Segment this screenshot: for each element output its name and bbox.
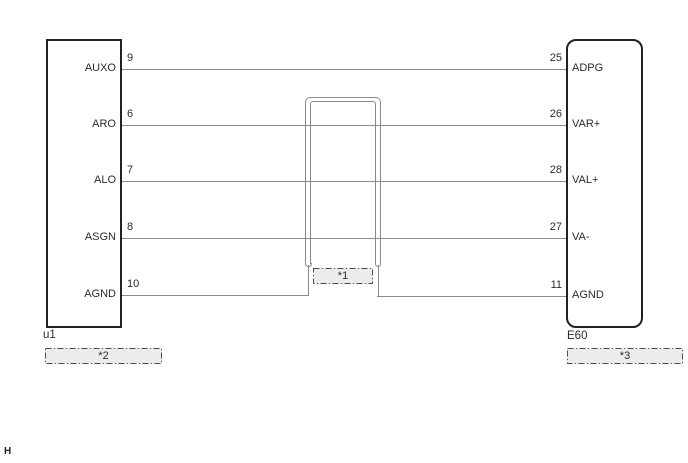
pin-number-11: 11 (500, 279, 562, 291)
pin-number-26: 26 (500, 108, 562, 120)
callout-u1-label: *2 (98, 350, 108, 362)
page-marker: H (4, 446, 11, 457)
pin-label-asgn: ASGN (46, 229, 116, 245)
callout-shield: *1 (313, 268, 373, 284)
pin-label-vaminus: VA- (572, 229, 642, 245)
pin-label-valplus: VAL+ (572, 172, 642, 188)
wire-agnd-left (122, 295, 309, 296)
pin-label-alo: ALO (46, 172, 116, 188)
connector-id-e60: E60 (567, 330, 587, 343)
shield-cap-left (305, 263, 312, 268)
pin-number-10: 10 (127, 278, 157, 290)
callout-e60: *3 (567, 348, 683, 364)
pin-label-agnd-right: AGND (572, 287, 642, 303)
wire-auxo-adpg (122, 69, 566, 70)
pin-label-adpg: ADPG (572, 60, 642, 76)
pin-label-aro: ARO (46, 116, 116, 132)
pin-number-28: 28 (500, 164, 562, 176)
pin-number-6: 6 (127, 108, 157, 120)
pin-label-agnd-left: AGND (46, 286, 116, 302)
pin-label-auxo: AUXO (46, 60, 116, 76)
wiring-diagram: AUXO 9 25 ADPG ARO 6 26 VAR+ ALO 7 28 VA… (0, 0, 688, 463)
connector-id-u1: u1 (43, 329, 56, 342)
callout-u1: *2 (45, 348, 162, 364)
wire-shield-drop-left (308, 265, 309, 296)
wire-shield-drop-right (378, 265, 379, 297)
pin-number-25: 25 (500, 52, 562, 64)
pin-label-varplus: VAR+ (572, 116, 642, 132)
callout-e60-label: *3 (620, 350, 630, 362)
pin-number-27: 27 (500, 221, 562, 233)
pin-number-7: 7 (127, 164, 157, 176)
callout-shield-label: *1 (338, 270, 348, 282)
pin-number-9: 9 (127, 52, 157, 64)
pin-number-8: 8 (127, 221, 157, 233)
wire-agnd-right (377, 296, 566, 297)
shield-cap-right (375, 263, 382, 268)
shield-inner (310, 101, 376, 264)
